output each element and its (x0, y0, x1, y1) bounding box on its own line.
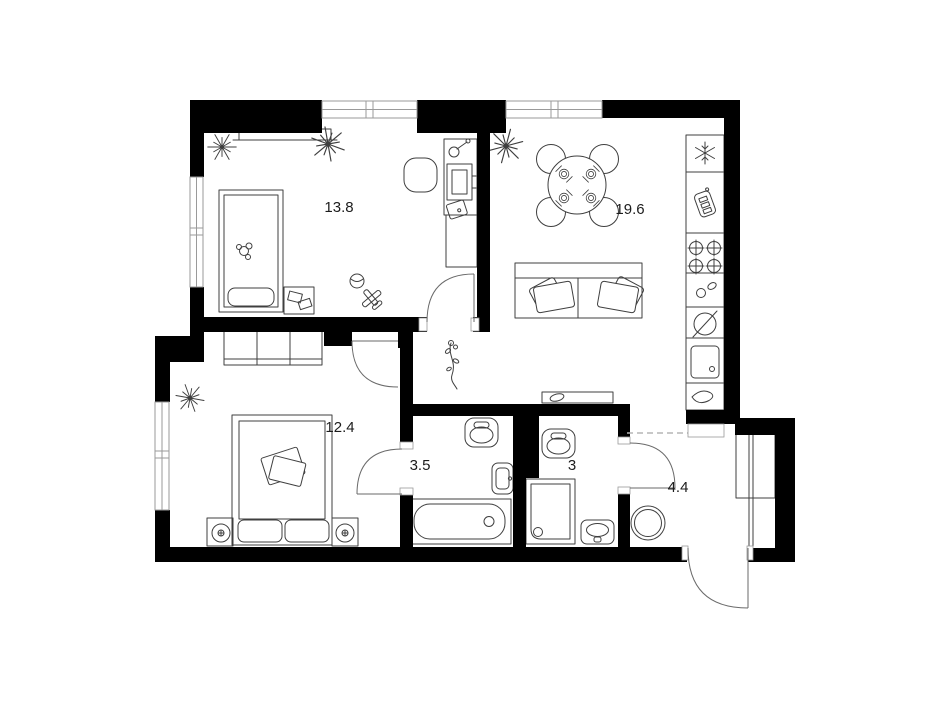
door-jamb (400, 442, 413, 449)
toy-ball-icon (350, 274, 364, 288)
wall-left-step (155, 336, 204, 362)
desk-lamp-icon (449, 139, 470, 157)
wall-bathroom-left-upper (400, 330, 413, 448)
wall-right-kitchen (724, 100, 740, 424)
toilet-icon (465, 418, 498, 447)
wall-bathroom-left-lower (400, 494, 413, 560)
bathroom-door (357, 449, 402, 494)
monitor-icon (447, 164, 476, 200)
desk (444, 139, 477, 219)
fridge-freezer-icon (696, 142, 715, 164)
bedroom-2-door (352, 341, 398, 387)
wall-niche (688, 424, 724, 437)
round-appliance-icon (693, 311, 717, 337)
single-bed (219, 190, 283, 312)
blanket (268, 455, 306, 486)
table-lamp-icon (336, 524, 354, 542)
wall-left-upper (190, 100, 204, 177)
room-label-bedroom-1: 13.8 (324, 199, 353, 216)
room-label-shower-room: 3 (568, 457, 576, 474)
wall-bottom (155, 547, 687, 562)
bathtub-icon (408, 499, 511, 544)
kitchen-sink-icon (691, 346, 719, 378)
wall-bedroom1-bottom (190, 317, 427, 332)
drawer-unit (446, 215, 477, 267)
toy-airplane-icon (357, 284, 387, 314)
pillow (228, 288, 274, 306)
door-jamb (419, 318, 427, 331)
sofa-pillow (597, 281, 639, 313)
sofa-pillow (533, 281, 575, 313)
shower-cabin-icon (526, 479, 575, 544)
wall-bedroom2-top-stub (324, 332, 352, 346)
teddy-bear-icon (237, 243, 253, 260)
wall-left-upper-2 (190, 287, 204, 343)
bedroom-1-door (427, 274, 474, 322)
decor-drop-icon (692, 391, 713, 403)
hall-wardrobe (736, 434, 775, 546)
wall-shower-right-lower (618, 488, 630, 560)
pillow (285, 520, 329, 542)
kitchen-unit (686, 135, 724, 410)
desk-accessory-icon (446, 200, 468, 220)
room-bedroom-1-furniture (208, 124, 477, 314)
room-label-hallway: 4.4 (668, 479, 689, 496)
tall-cabinet-icon (693, 187, 718, 218)
wall-right-hall (775, 435, 795, 560)
room-bathroom-furniture (408, 418, 513, 544)
pouf-icon (631, 506, 665, 540)
wardrobe-3-section (224, 331, 322, 365)
table-lamp-icon (212, 524, 230, 542)
floor-plan-page: 13.8 19.6 12.4 3.5 3 4.4 (0, 0, 950, 712)
window-left-bedroom-1 (190, 177, 203, 287)
wall-hall-top (735, 418, 795, 435)
wall-shaft-pier (526, 408, 539, 478)
window-top-bedroom-1 (322, 101, 417, 118)
room-hallway-furniture (631, 434, 775, 546)
console-shelf (542, 392, 613, 403)
pillow (238, 520, 282, 542)
window-left-bedroom-2 (155, 402, 169, 510)
sofa (515, 263, 645, 318)
room-label-living-kitchen: 19.6 (615, 201, 644, 218)
counter-accessories-icon (697, 281, 718, 297)
wall-stub-kitchen-end (686, 410, 724, 424)
dried-flowers-decor-icon (445, 341, 460, 390)
nightstand (284, 287, 314, 314)
wall-top-left (190, 100, 322, 133)
room-label-bathroom: 3.5 (410, 457, 431, 474)
wall-between-baths (513, 404, 526, 560)
room-shower-furniture (526, 429, 614, 544)
floor-plan: 13.8 19.6 12.4 3.5 3 4.4 (0, 0, 950, 712)
wall-partition-rooms (477, 100, 490, 332)
wall-left-lower (155, 362, 170, 402)
desk-chair (404, 158, 437, 192)
room-label-bedroom-2: 12.4 (325, 419, 354, 436)
star-plant-icon (174, 383, 206, 412)
room-labels: 13.8 19.6 12.4 3.5 3 4.4 (324, 199, 688, 496)
window-top-living (506, 101, 602, 118)
room-bedroom-2-furniture (174, 331, 358, 546)
cooktop-icon (688, 240, 722, 274)
books-icon (298, 298, 312, 309)
wall-top-right (602, 100, 738, 118)
washbasin-icon (492, 463, 513, 494)
toilet-icon (542, 429, 575, 458)
entrance-door (688, 548, 748, 608)
door-jamb (618, 437, 630, 444)
small-washbasin-icon (581, 520, 614, 544)
double-bed (232, 415, 332, 545)
round-dining-table (548, 156, 606, 214)
door-jamb (618, 487, 630, 494)
door-jamb (682, 546, 688, 560)
door-jamb (471, 318, 479, 331)
star-plant-icon (208, 135, 237, 160)
wall-top-middle (417, 100, 506, 133)
